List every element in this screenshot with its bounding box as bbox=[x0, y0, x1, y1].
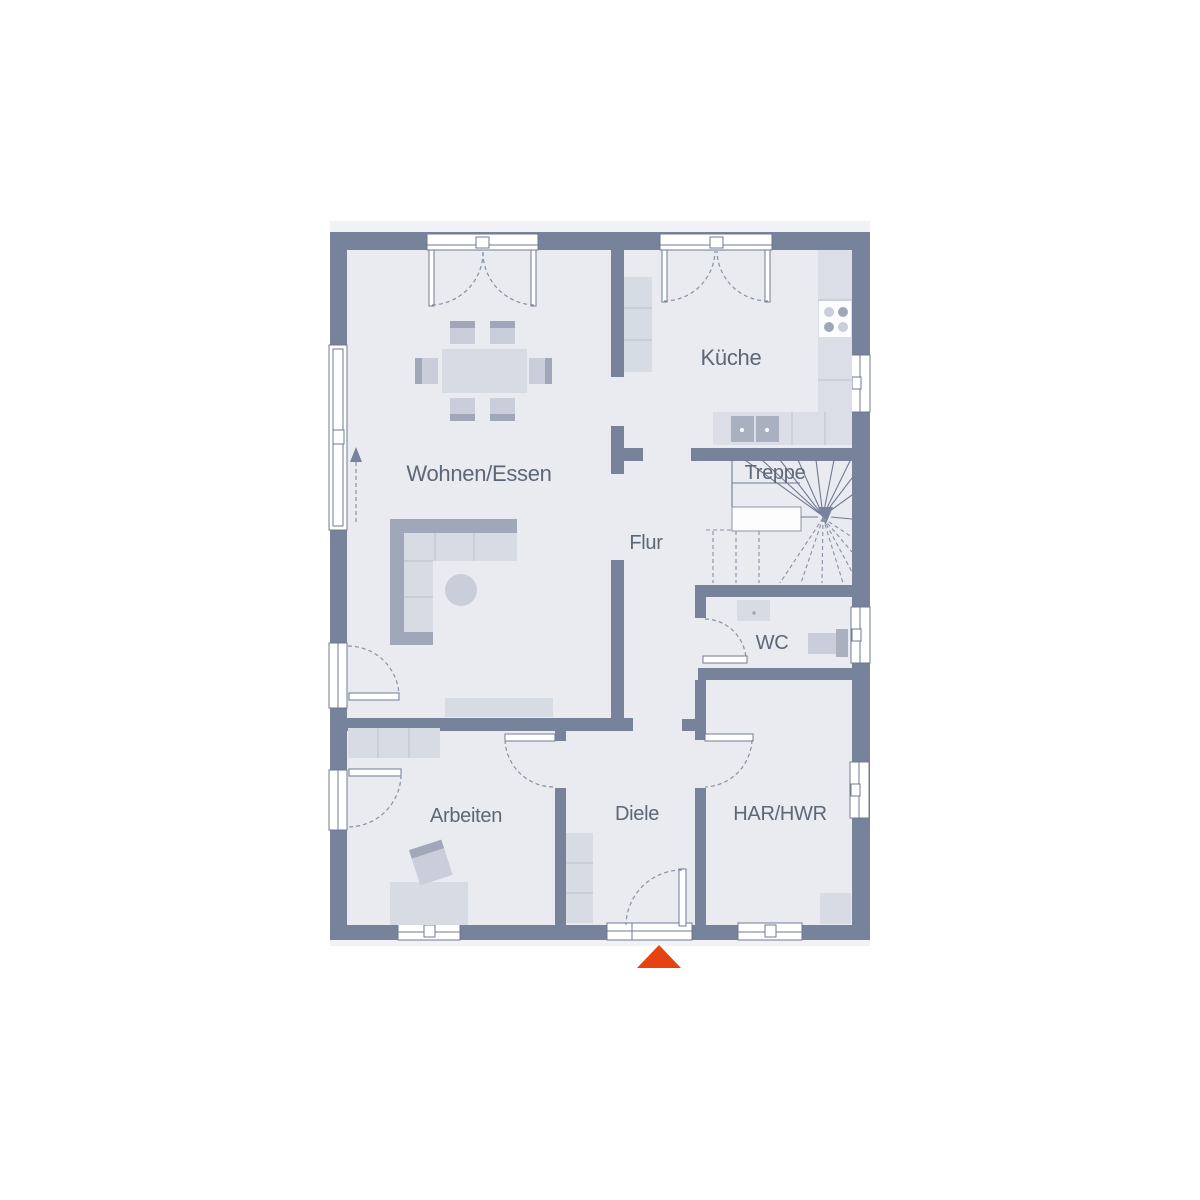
room-label-wohnen-essen: Wohnen/Essen bbox=[406, 461, 551, 486]
toilet bbox=[808, 629, 848, 657]
window-kueche-right bbox=[851, 355, 870, 412]
coffee-table bbox=[445, 574, 477, 606]
room-label-har-hwr: HAR/HWR bbox=[733, 803, 826, 825]
window-har-bottom bbox=[738, 923, 802, 940]
kitchen-shelf bbox=[624, 277, 652, 372]
window-wc-right bbox=[851, 607, 870, 663]
sideboard-arbeiten bbox=[348, 728, 440, 758]
room-label-arbeiten: Arbeiten bbox=[430, 805, 502, 827]
entrance-marker-icon bbox=[637, 945, 681, 968]
stove bbox=[819, 301, 851, 337]
window-wohnen-left bbox=[329, 345, 347, 530]
desk bbox=[390, 882, 468, 925]
floor-plan-page: Wohnen/Essen Küche Treppe Flur WC Arbeit… bbox=[0, 0, 1200, 1200]
sideboard-wohnen bbox=[445, 698, 553, 717]
window-arbeiten-bottom bbox=[398, 923, 460, 940]
wc-sink bbox=[737, 600, 770, 621]
room-label-flur: Flur bbox=[629, 532, 663, 554]
room-label-diele: Diele bbox=[615, 803, 659, 825]
floor-plan-drawing: Wohnen/Essen Küche Treppe Flur WC Arbeit… bbox=[0, 0, 1200, 1200]
appliance-har bbox=[820, 893, 851, 924]
wardrobe-diele bbox=[566, 833, 593, 923]
room-label-wc: WC bbox=[756, 632, 789, 654]
room-label-kueche: Küche bbox=[701, 345, 762, 370]
window-har-right bbox=[850, 762, 869, 818]
room-label-treppe: Treppe bbox=[745, 462, 806, 484]
